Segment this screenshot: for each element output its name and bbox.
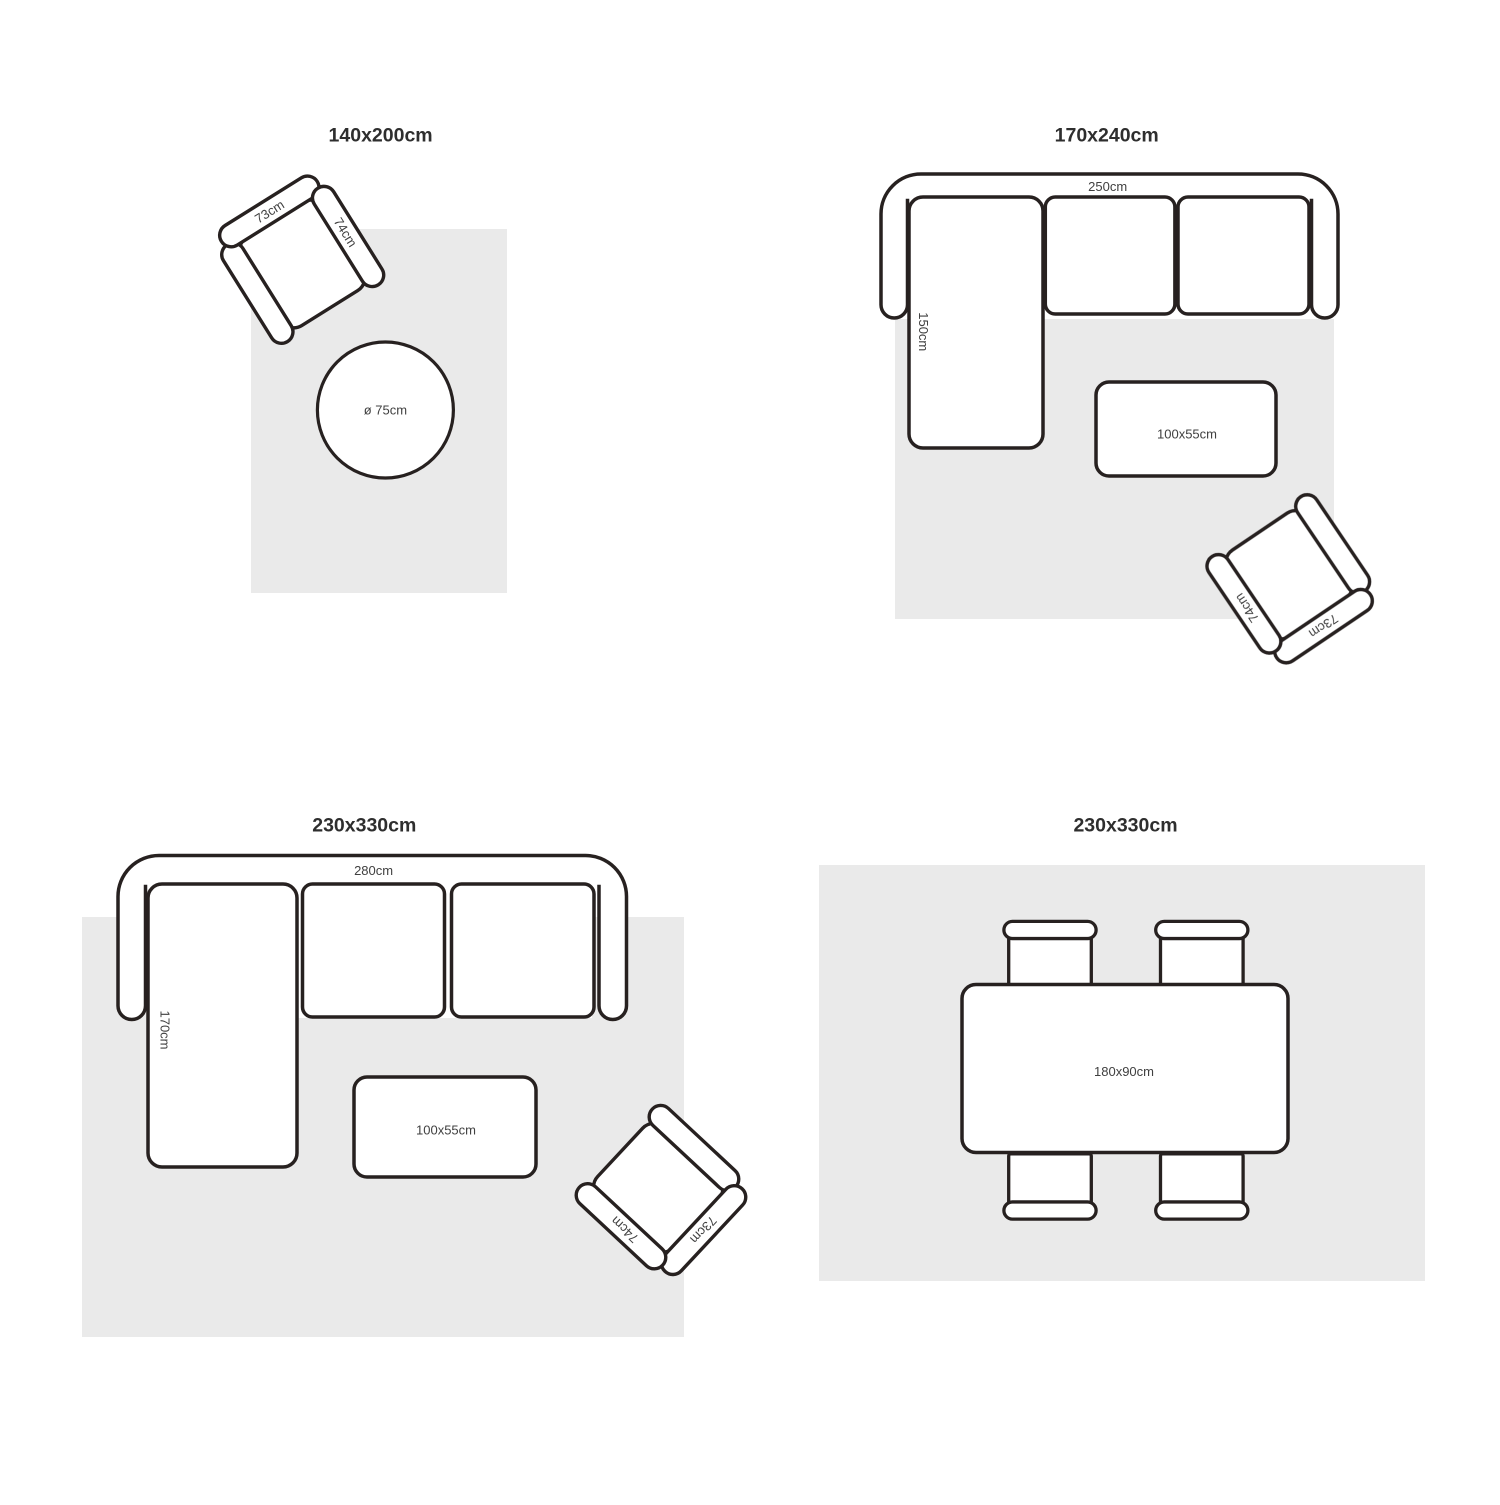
svg-text:100x55cm: 100x55cm [416, 1123, 476, 1138]
svg-text:140x200cm: 140x200cm [329, 125, 433, 147]
svg-text:ø 75cm: ø 75cm [364, 403, 407, 418]
svg-text:100x55cm: 100x55cm [1157, 427, 1217, 442]
svg-text:150cm: 150cm [916, 312, 931, 351]
svg-text:250cm: 250cm [1088, 179, 1127, 194]
svg-text:230x330cm: 230x330cm [1073, 815, 1177, 837]
svg-text:170cm: 170cm [158, 1010, 173, 1049]
svg-text:170x240cm: 170x240cm [1055, 124, 1159, 146]
svg-text:180x90cm: 180x90cm [1094, 1064, 1154, 1079]
svg-text:280cm: 280cm [354, 863, 393, 878]
svg-text:230x330cm: 230x330cm [312, 815, 416, 837]
